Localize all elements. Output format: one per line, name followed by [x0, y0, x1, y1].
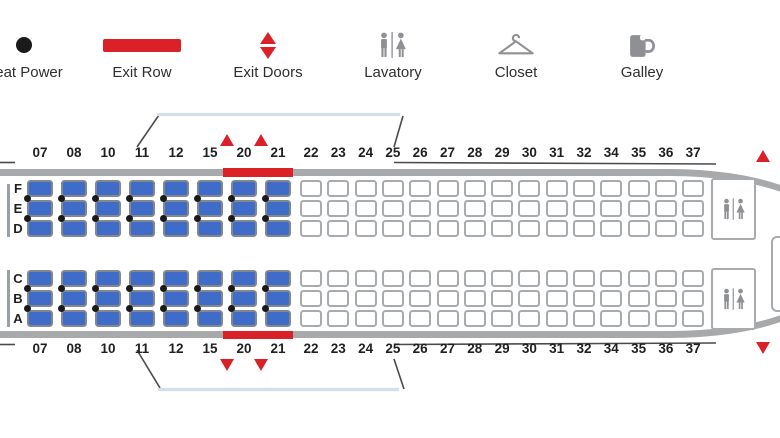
seat-23F[interactable] — [327, 180, 349, 197]
seat-12A[interactable] — [163, 310, 189, 327]
seat-36B[interactable] — [655, 290, 677, 307]
seat-21C[interactable] — [265, 270, 291, 287]
seat-25A[interactable] — [382, 310, 404, 327]
lavatory-icon — [720, 198, 748, 221]
seat-37C[interactable] — [682, 270, 704, 287]
row-number-top: 34 — [604, 145, 619, 160]
seat-20E[interactable] — [231, 200, 257, 217]
seat-36F[interactable] — [655, 180, 677, 197]
seat-power-dot — [160, 195, 167, 202]
seat-power-dot — [92, 215, 99, 222]
seat-power-dot — [92, 305, 99, 312]
seat-power-dot — [262, 305, 269, 312]
row-number-bottom: 08 — [66, 341, 81, 356]
exit-door-15-20-top-icon — [220, 134, 234, 146]
seat-letter-A: A — [10, 310, 26, 327]
seat-08F[interactable] — [61, 180, 87, 197]
seat-35D[interactable] — [628, 220, 650, 237]
row-number-top: 08 — [66, 145, 81, 160]
seat-36A[interactable] — [655, 310, 677, 327]
seat-28B[interactable] — [464, 290, 486, 307]
seat-power-dot — [262, 215, 269, 222]
seat-15F[interactable] — [197, 180, 223, 197]
seat-11F[interactable] — [129, 180, 155, 197]
seat-29E[interactable] — [491, 200, 513, 217]
row-number-bottom: 31 — [549, 341, 564, 356]
row-number-bottom: 28 — [467, 341, 482, 356]
seat-20F[interactable] — [231, 180, 257, 197]
row-number-bottom: 07 — [32, 341, 47, 356]
row-number-top: 36 — [658, 145, 673, 160]
seat-10A[interactable] — [95, 310, 121, 327]
seat-37E[interactable] — [682, 200, 704, 217]
row-number-top: 22 — [303, 145, 318, 160]
seat-29F[interactable] — [491, 180, 513, 197]
seat-22A[interactable] — [300, 310, 322, 327]
seat-30B[interactable] — [518, 290, 540, 307]
seat-23E[interactable] — [327, 200, 349, 217]
seat-27E[interactable] — [437, 200, 459, 217]
seat-36E[interactable] — [655, 200, 677, 217]
seat-29A[interactable] — [491, 310, 513, 327]
seat-15C[interactable] — [197, 270, 223, 287]
row-number-bottom: 32 — [576, 341, 591, 356]
row-number-top: 24 — [358, 145, 373, 160]
seat-24F[interactable] — [355, 180, 377, 197]
exit-door-20-21-top-icon — [254, 134, 268, 146]
seat-power-dot — [262, 285, 269, 292]
row-number-bottom: 34 — [604, 341, 619, 356]
row-number-bottom: 30 — [522, 341, 537, 356]
seat-power-dot — [228, 285, 235, 292]
seat-31C[interactable] — [546, 270, 568, 287]
seat-10D[interactable] — [95, 220, 121, 237]
row-number-top: 15 — [202, 145, 217, 160]
seat-35B[interactable] — [628, 290, 650, 307]
row-number-bottom: 27 — [440, 341, 455, 356]
row-number-bottom: 37 — [686, 341, 701, 356]
seat-25D[interactable] — [382, 220, 404, 237]
seat-power-dot — [194, 285, 201, 292]
lavatory-rear-upper — [711, 178, 756, 240]
seat-37A[interactable] — [682, 310, 704, 327]
row-number-top: 27 — [440, 145, 455, 160]
seat-20C[interactable] — [231, 270, 257, 287]
row-number-bottom: 23 — [331, 341, 346, 356]
seat-25F[interactable] — [382, 180, 404, 197]
row-number-bottom: 35 — [631, 341, 646, 356]
seat-power-dot — [228, 195, 235, 202]
seat-07D[interactable] — [27, 220, 53, 237]
row-number-top: 07 — [32, 145, 47, 160]
seat-10E[interactable] — [95, 200, 121, 217]
seat-29D[interactable] — [491, 220, 513, 237]
seat-31D[interactable] — [546, 220, 568, 237]
seat-07F[interactable] — [27, 180, 53, 197]
seat-power-dot — [160, 285, 167, 292]
seat-26C[interactable] — [409, 270, 431, 287]
seat-26B[interactable] — [409, 290, 431, 307]
seat-23A[interactable] — [327, 310, 349, 327]
row-number-top: 26 — [413, 145, 428, 160]
seat-23D[interactable] — [327, 220, 349, 237]
seat-12D[interactable] — [163, 220, 189, 237]
seat-34C[interactable] — [600, 270, 622, 287]
row-number-top: 28 — [467, 145, 482, 160]
seat-12F[interactable] — [163, 180, 189, 197]
seat-24C[interactable] — [355, 270, 377, 287]
row-number-top: 21 — [270, 145, 285, 160]
seat-27A[interactable] — [437, 310, 459, 327]
seat-power-dot — [228, 215, 235, 222]
seat-power-dot — [194, 305, 201, 312]
seat-31A[interactable] — [546, 310, 568, 327]
row-number-top: 25 — [385, 145, 400, 160]
seat-power-dot — [24, 195, 31, 202]
row-number-bottom: 29 — [495, 341, 510, 356]
seat-20A[interactable] — [231, 310, 257, 327]
seat-22D[interactable] — [300, 220, 322, 237]
exit-door-rear-bottom-icon — [756, 342, 770, 354]
row-number-top: 32 — [576, 145, 591, 160]
seat-11B[interactable] — [129, 290, 155, 307]
seat-power-dot — [126, 305, 133, 312]
seat-28E[interactable] — [464, 200, 486, 217]
seat-power-dot — [92, 195, 99, 202]
seat-letter-B: B — [10, 290, 26, 307]
row-number-top: 30 — [522, 145, 537, 160]
seat-35C[interactable] — [628, 270, 650, 287]
seat-34E[interactable] — [600, 200, 622, 217]
seat-power-dot — [126, 285, 133, 292]
seat-28A[interactable] — [464, 310, 486, 327]
seat-11C[interactable] — [129, 270, 155, 287]
seat-15E[interactable] — [197, 200, 223, 217]
seat-28C[interactable] — [464, 270, 486, 287]
seat-10B[interactable] — [95, 290, 121, 307]
row-number-top: 12 — [168, 145, 183, 160]
tail-galley — [771, 236, 780, 312]
seat-26E[interactable] — [409, 200, 431, 217]
seat-31B[interactable] — [546, 290, 568, 307]
seat-power-dot — [24, 215, 31, 222]
seat-power-dot — [24, 305, 31, 312]
seat-07B[interactable] — [27, 290, 53, 307]
seat-11D[interactable] — [129, 220, 155, 237]
seat-27F[interactable] — [437, 180, 459, 197]
row-number-bottom: 21 — [270, 341, 285, 356]
seat-31E[interactable] — [546, 200, 568, 217]
seat-power-dot — [126, 195, 133, 202]
seat-30C[interactable] — [518, 270, 540, 287]
seat-10C[interactable] — [95, 270, 121, 287]
seat-07A[interactable] — [27, 310, 53, 327]
seat-21D[interactable] — [265, 220, 291, 237]
seat-power-dot — [58, 215, 65, 222]
seat-27D[interactable] — [437, 220, 459, 237]
seat-36D[interactable] — [655, 220, 677, 237]
seat-21B[interactable] — [265, 290, 291, 307]
row-number-top: 23 — [331, 145, 346, 160]
exit-door-15-20-bottom-icon — [220, 359, 234, 371]
seat-34A[interactable] — [600, 310, 622, 327]
seat-24A[interactable] — [355, 310, 377, 327]
seat-21A[interactable] — [265, 310, 291, 327]
seat-20B[interactable] — [231, 290, 257, 307]
exit-door-rear-top-icon — [756, 150, 770, 162]
seat-25C[interactable] — [382, 270, 404, 287]
seat-34F[interactable] — [600, 180, 622, 197]
seat-15D[interactable] — [197, 220, 223, 237]
row-number-top: 31 — [549, 145, 564, 160]
seat-12E[interactable] — [163, 200, 189, 217]
seat-07E[interactable] — [27, 200, 53, 217]
seat-23C[interactable] — [327, 270, 349, 287]
seat-28D[interactable] — [464, 220, 486, 237]
row-number-top: 10 — [100, 145, 115, 160]
seat-21F[interactable] — [265, 180, 291, 197]
seat-30D[interactable] — [518, 220, 540, 237]
seat-30A[interactable] — [518, 310, 540, 327]
seat-23B[interactable] — [327, 290, 349, 307]
seat-08B[interactable] — [61, 290, 87, 307]
row-number-top: 35 — [631, 145, 646, 160]
seat-32A[interactable] — [573, 310, 595, 327]
seat-37F[interactable] — [682, 180, 704, 197]
seat-power-dot — [160, 215, 167, 222]
seat-power-dot — [160, 305, 167, 312]
seat-22F[interactable] — [300, 180, 322, 197]
seat-10F[interactable] — [95, 180, 121, 197]
seat-30F[interactable] — [518, 180, 540, 197]
seat-34D[interactable] — [600, 220, 622, 237]
exit-door-20-21-bottom-icon — [254, 359, 268, 371]
seat-24B[interactable] — [355, 290, 377, 307]
seat-24E[interactable] — [355, 200, 377, 217]
seat-power-dot — [58, 285, 65, 292]
seat-power-dot — [194, 215, 201, 222]
seat-map-page: Seat Power Exit Row Exit Doors Lava — [0, 0, 780, 438]
seat-28F[interactable] — [464, 180, 486, 197]
seat-15A[interactable] — [197, 310, 223, 327]
seat-35A[interactable] — [628, 310, 650, 327]
row-number-bottom: 20 — [236, 341, 251, 356]
seat-25B[interactable] — [382, 290, 404, 307]
seat-34B[interactable] — [600, 290, 622, 307]
lavatory-icon — [720, 288, 748, 311]
seat-27C[interactable] — [437, 270, 459, 287]
seat-power-dot — [126, 215, 133, 222]
row-number-top: 11 — [135, 145, 149, 160]
seat-27B[interactable] — [437, 290, 459, 307]
seat-power-dot — [92, 285, 99, 292]
seat-power-dot — [58, 195, 65, 202]
seat-35F[interactable] — [628, 180, 650, 197]
row-number-bottom: 11 — [135, 341, 149, 356]
seat-32F[interactable] — [573, 180, 595, 197]
row-number-bottom: 24 — [358, 341, 373, 356]
seat-22E[interactable] — [300, 200, 322, 217]
seat-15B[interactable] — [197, 290, 223, 307]
seat-31F[interactable] — [546, 180, 568, 197]
seat-power-dot — [262, 195, 269, 202]
seat-power-dot — [58, 305, 65, 312]
seat-26A[interactable] — [409, 310, 431, 327]
row-number-bottom: 12 — [168, 341, 183, 356]
seat-37B[interactable] — [682, 290, 704, 307]
row-number-bottom: 15 — [202, 341, 217, 356]
seat-20D[interactable] — [231, 220, 257, 237]
seat-32E[interactable] — [573, 200, 595, 217]
row-number-bottom: 26 — [413, 341, 428, 356]
wings-overlay — [0, 0, 780, 438]
seat-25E[interactable] — [382, 200, 404, 217]
seat-08A[interactable] — [61, 310, 87, 327]
seat-power-dot — [194, 195, 201, 202]
seat-letter-E: E — [10, 200, 26, 217]
seat-35E[interactable] — [628, 200, 650, 217]
seat-32C[interactable] — [573, 270, 595, 287]
seat-power-dot — [228, 305, 235, 312]
seat-08E[interactable] — [61, 200, 87, 217]
seat-22C[interactable] — [300, 270, 322, 287]
exit-row-bar-bottom — [223, 331, 293, 340]
seat-30E[interactable] — [518, 200, 540, 217]
seat-08D[interactable] — [61, 220, 87, 237]
seat-37D[interactable] — [682, 220, 704, 237]
seat-26D[interactable] — [409, 220, 431, 237]
seat-12C[interactable] — [163, 270, 189, 287]
seat-11E[interactable] — [129, 200, 155, 217]
seat-letter-C: C — [10, 270, 26, 287]
seat-36C[interactable] — [655, 270, 677, 287]
seat-power-dot — [24, 285, 31, 292]
seat-29B[interactable] — [491, 290, 513, 307]
seat-29C[interactable] — [491, 270, 513, 287]
row-number-top: 37 — [686, 145, 701, 160]
seat-letter-F: F — [10, 180, 26, 197]
seat-08C[interactable] — [61, 270, 87, 287]
seat-11A[interactable] — [129, 310, 155, 327]
seat-24D[interactable] — [355, 220, 377, 237]
exit-row-bar-top — [223, 168, 293, 177]
row-number-bottom: 22 — [303, 341, 318, 356]
row-number-top: 29 — [495, 145, 510, 160]
seat-letter-D: D — [10, 220, 26, 237]
lavatory-rear-lower — [711, 268, 756, 330]
seat-22B[interactable] — [300, 290, 322, 307]
seat-12B[interactable] — [163, 290, 189, 307]
row-number-bottom: 36 — [658, 341, 673, 356]
seat-32D[interactable] — [573, 220, 595, 237]
seat-26F[interactable] — [409, 180, 431, 197]
row-number-bottom: 25 — [385, 341, 400, 356]
seat-21E[interactable] — [265, 200, 291, 217]
row-number-top: 20 — [236, 145, 251, 160]
seat-07C[interactable] — [27, 270, 53, 287]
row-number-bottom: 10 — [100, 341, 115, 356]
seat-32B[interactable] — [573, 290, 595, 307]
